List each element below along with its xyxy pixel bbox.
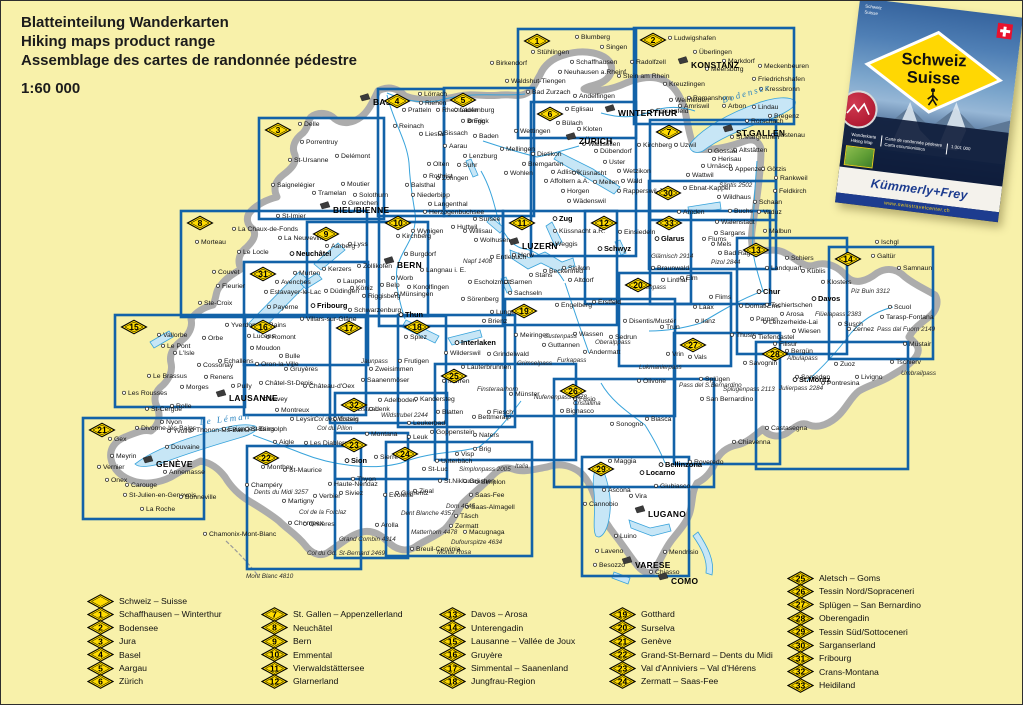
town-marker bbox=[411, 193, 414, 196]
town-label: Les Rousses bbox=[128, 390, 168, 397]
legend-item-13: 13Davos – Arosa bbox=[439, 608, 528, 620]
town-label: Dietikon bbox=[537, 151, 562, 158]
town-label: Montana bbox=[371, 431, 398, 438]
legend-item-21: 21Genève bbox=[609, 635, 671, 647]
town-label: Frutigen bbox=[404, 358, 429, 365]
town-label: Elm bbox=[686, 275, 698, 282]
town-marker bbox=[288, 521, 291, 524]
town-label: Bülach bbox=[562, 120, 583, 127]
town-marker bbox=[123, 493, 126, 496]
town-label: Divonne-les-Bains bbox=[141, 425, 197, 432]
town-label: Goppenstein bbox=[436, 429, 475, 436]
town-label: Kirchberg bbox=[402, 233, 431, 240]
town-marker bbox=[473, 217, 476, 220]
town-marker bbox=[739, 304, 742, 307]
town-label: Klosters bbox=[827, 279, 852, 286]
town-label: Uzwil bbox=[680, 142, 697, 149]
town-label: Dübendorf bbox=[600, 148, 632, 155]
town-marker bbox=[531, 152, 534, 155]
town-label: Walenstadt bbox=[721, 219, 755, 226]
town-marker bbox=[160, 420, 163, 423]
town-marker bbox=[718, 251, 721, 254]
town-label: Porrentruy bbox=[306, 139, 338, 146]
svg-text:17: 17 bbox=[448, 663, 458, 673]
legend-item-3: 3Jura bbox=[87, 635, 136, 647]
town-label: Zuoz bbox=[840, 361, 856, 368]
town-label: Laufenburg bbox=[460, 107, 495, 114]
town-label: Balsthal bbox=[411, 182, 436, 189]
town-label: Sörenberg bbox=[467, 296, 499, 303]
town-label: Buchs bbox=[734, 208, 753, 215]
town-marker bbox=[531, 50, 534, 53]
town-label: Orbe bbox=[208, 335, 223, 342]
town-label: Moudon bbox=[256, 345, 281, 352]
town-label: Schaan bbox=[759, 199, 782, 206]
legend-item-1: 1Schaffhausen – Winterthur bbox=[87, 608, 222, 620]
town-marker bbox=[411, 229, 414, 232]
town-label: Lucens bbox=[253, 333, 276, 340]
town-label: Vallorbe bbox=[163, 332, 188, 339]
peak-pass-label: Umbrailpass bbox=[901, 370, 937, 377]
town-marker bbox=[765, 266, 768, 269]
legend-label: Bodensee bbox=[119, 623, 158, 633]
town-label: Riehen bbox=[425, 100, 447, 107]
town-label: Flims bbox=[715, 294, 732, 301]
svg-text:13: 13 bbox=[448, 609, 458, 619]
town-label: Kreuzlingen bbox=[669, 81, 705, 88]
town-label: Disentis/Mustér bbox=[629, 318, 677, 325]
town-marker bbox=[231, 384, 234, 387]
sheet-number-diamond-25: 25 bbox=[788, 571, 813, 585]
town-label: Herisau bbox=[718, 156, 742, 163]
svg-text:10: 10 bbox=[270, 649, 280, 659]
legend-label: Sarganserland bbox=[819, 640, 876, 650]
town-label: Leuk bbox=[413, 434, 428, 441]
city-marker bbox=[311, 304, 315, 308]
sheet-number-diamond-3: 3 bbox=[266, 123, 291, 137]
town-marker bbox=[195, 240, 198, 243]
town-marker bbox=[357, 264, 360, 267]
town-marker bbox=[463, 530, 466, 533]
peak-pass-label: Grand Combin 4314 bbox=[339, 536, 396, 543]
city-area-marker bbox=[678, 57, 688, 65]
town-marker bbox=[500, 147, 503, 150]
town-label: Vrin bbox=[672, 351, 684, 358]
town-marker bbox=[303, 384, 306, 387]
sheet-number-diamond-3: 3 bbox=[88, 634, 113, 648]
town-label: Sisikon bbox=[568, 265, 590, 272]
town-marker bbox=[487, 352, 490, 355]
map-index-page: BlumbergSingenStühlingenSchaffhausenNeuh… bbox=[0, 0, 1023, 705]
town-marker bbox=[543, 269, 546, 272]
town-marker bbox=[473, 433, 476, 436]
town-marker bbox=[324, 289, 327, 292]
town-label: Annemasse bbox=[169, 469, 205, 476]
town-label: Visp bbox=[461, 451, 474, 458]
peak-pass-label: Dent Blanche 4357 bbox=[401, 510, 455, 517]
town-marker bbox=[514, 333, 517, 336]
town-label: Herzogenbuchsee bbox=[429, 209, 484, 216]
town-label: Andelfingen bbox=[579, 93, 615, 100]
town-marker bbox=[855, 375, 858, 378]
legend-diamond-icon: 33 bbox=[787, 678, 814, 693]
town-marker bbox=[504, 280, 507, 283]
town-label: Douvaine bbox=[171, 444, 200, 451]
peak-pass-label: Wildstrubel 2244 bbox=[381, 412, 428, 419]
city-label: Sion bbox=[351, 456, 367, 465]
town-marker bbox=[469, 493, 472, 496]
town-label: St-Imier bbox=[282, 213, 307, 220]
town-marker bbox=[438, 131, 441, 134]
town-label: Ste-Croix bbox=[204, 300, 233, 307]
svg-text:30: 30 bbox=[663, 188, 673, 198]
town-marker bbox=[232, 227, 235, 230]
town-label: Delémont bbox=[341, 153, 370, 160]
town-label: Couvet bbox=[218, 269, 240, 276]
town-marker bbox=[472, 415, 475, 418]
town-marker bbox=[490, 61, 493, 64]
town-label: Galtür bbox=[877, 253, 896, 260]
city-marker bbox=[399, 313, 403, 317]
town-marker bbox=[645, 417, 648, 420]
town-marker bbox=[701, 164, 704, 167]
peak-pass-label: Sustenpass bbox=[544, 333, 578, 340]
sheet-number-diamond-2: 2 bbox=[88, 621, 113, 635]
town-label: Singen bbox=[606, 44, 627, 51]
town-marker bbox=[752, 335, 755, 338]
town-marker bbox=[677, 210, 680, 213]
town-label: Rankweil bbox=[780, 175, 808, 182]
legend-label: Grand-St-Bernard – Dents du Midi bbox=[641, 650, 773, 660]
town-marker bbox=[451, 225, 454, 228]
town-label: Gex bbox=[114, 436, 127, 443]
town-marker bbox=[765, 426, 768, 429]
town-marker bbox=[666, 352, 669, 355]
svg-text:32: 32 bbox=[349, 400, 359, 410]
town-label: Gossau bbox=[714, 148, 738, 155]
town-label: Belp bbox=[386, 282, 400, 289]
town-marker bbox=[125, 483, 128, 486]
town-label: Tschierv bbox=[896, 359, 922, 366]
town-marker bbox=[482, 319, 485, 322]
peak-pass-label: Simplonpass 2005 bbox=[459, 466, 511, 473]
town-marker bbox=[312, 191, 315, 194]
svg-text:28: 28 bbox=[796, 613, 806, 623]
town-marker bbox=[785, 349, 788, 352]
legend-item-27: 27Splügen – San Bernardino bbox=[787, 599, 921, 611]
town-label: Sonogno bbox=[616, 421, 643, 428]
town-marker bbox=[743, 361, 746, 364]
town-marker bbox=[250, 346, 253, 349]
town-label: Braunwald bbox=[657, 265, 689, 272]
town-marker bbox=[419, 101, 422, 104]
town-label: Wilderswil bbox=[450, 350, 481, 357]
major-city-label: COMO bbox=[671, 576, 698, 586]
town-label: Haute-Nendaz bbox=[334, 481, 378, 488]
town-label: Evolène bbox=[389, 492, 414, 499]
city-marker bbox=[812, 297, 816, 301]
town-label: Vals bbox=[694, 354, 707, 361]
legend-item-10: 10Emmental bbox=[261, 649, 332, 661]
town-marker bbox=[618, 230, 621, 233]
peak-pass-label: Dents du Midi 3257 bbox=[254, 489, 309, 496]
town-marker bbox=[608, 459, 611, 462]
city-area-marker bbox=[360, 94, 370, 102]
sheet-number-diamond-33: 33 bbox=[788, 678, 813, 692]
town-label: Olivone bbox=[643, 378, 666, 385]
town-label: Morteau bbox=[201, 239, 226, 246]
legend-label: Basel bbox=[119, 650, 141, 660]
town-marker bbox=[443, 144, 446, 147]
town-label: Birkendorf bbox=[496, 60, 527, 67]
town-label: Mellingen bbox=[506, 146, 535, 153]
town-marker bbox=[180, 385, 183, 388]
legend-label: Glarnerland bbox=[293, 676, 338, 686]
peak-pass-label: Lukmanierpass bbox=[639, 364, 683, 371]
peak-pass-label: Col du Gd. St-Bernard 2469 bbox=[307, 550, 386, 557]
peak-pass-label: Finsteraarhorn bbox=[477, 386, 518, 393]
town-label: Solothurn bbox=[359, 192, 388, 199]
svg-text:7: 7 bbox=[667, 127, 672, 137]
major-city-label: VARESE bbox=[635, 560, 671, 570]
town-marker bbox=[275, 408, 278, 411]
town-label: Tiefencastel bbox=[758, 334, 795, 341]
town-label: Arosa bbox=[786, 311, 804, 318]
sheet-number-diamond-14: 14 bbox=[836, 252, 861, 266]
town-marker bbox=[407, 435, 410, 438]
town-label: Aigle bbox=[279, 439, 294, 446]
town-marker bbox=[730, 135, 733, 138]
town-label: Romont bbox=[272, 334, 296, 341]
town-marker bbox=[383, 493, 386, 496]
title-french: Assemblage des cartes de randonnée pédes… bbox=[21, 51, 357, 70]
town-label: St-Luc bbox=[428, 466, 448, 473]
town-marker bbox=[247, 334, 250, 337]
town-label: Altstätten bbox=[739, 147, 768, 154]
town-label: Savognin bbox=[749, 360, 778, 367]
town-marker bbox=[880, 315, 883, 318]
city-marker bbox=[793, 378, 797, 382]
town-label: Bonneville bbox=[185, 494, 217, 501]
svg-text:9: 9 bbox=[272, 636, 277, 646]
town-label: Saas-Fee bbox=[475, 492, 505, 499]
svg-text:14: 14 bbox=[843, 254, 853, 264]
town-marker bbox=[278, 236, 281, 239]
town-label: Waldshut-Tiengen bbox=[511, 78, 566, 85]
town-label: Wald bbox=[627, 178, 642, 185]
peak-pass-label: Napf 1408 bbox=[463, 258, 493, 265]
legend-diamond-icon: 6 bbox=[87, 674, 114, 689]
town-marker bbox=[570, 60, 573, 63]
town-label: Wettingen bbox=[520, 128, 551, 135]
town-marker bbox=[614, 534, 617, 537]
town-marker bbox=[427, 162, 430, 165]
legend-item-14: 14Unterengadin bbox=[439, 622, 523, 634]
town-marker bbox=[551, 170, 554, 173]
town-marker bbox=[752, 77, 755, 80]
town-marker bbox=[821, 280, 824, 283]
town-label: Wetzikon bbox=[623, 168, 651, 175]
sheet-number-diamond-26: 26 bbox=[788, 585, 813, 599]
town-marker bbox=[362, 294, 365, 297]
town-marker bbox=[678, 104, 681, 107]
town-label: Brienz bbox=[488, 318, 508, 325]
town-marker bbox=[361, 378, 364, 381]
town-marker bbox=[595, 549, 598, 552]
town-marker bbox=[630, 60, 633, 63]
town-marker bbox=[369, 407, 372, 410]
town-label: Zernez bbox=[853, 326, 875, 333]
sheet-number-diamond-15: 15 bbox=[440, 634, 465, 648]
svg-text:29: 29 bbox=[796, 626, 806, 636]
town-label: St-Ursanne bbox=[294, 157, 329, 164]
town-label: Naters bbox=[479, 432, 500, 439]
town-label: Zweisimmen bbox=[375, 366, 413, 373]
town-label: La Roche bbox=[146, 506, 175, 513]
town-marker bbox=[404, 252, 407, 255]
legend-label: Tessin Nord/Sopraceneri bbox=[819, 586, 914, 596]
town-marker bbox=[264, 290, 267, 293]
town-marker bbox=[617, 169, 620, 172]
town-marker bbox=[688, 355, 691, 358]
town-label: Ascona bbox=[608, 487, 631, 494]
town-label: Brugg bbox=[467, 118, 485, 125]
town-label: Luino bbox=[620, 533, 637, 540]
town-label: Urnäsch bbox=[707, 163, 733, 170]
svg-text:16: 16 bbox=[258, 322, 268, 332]
town-marker bbox=[353, 193, 356, 196]
svg-text:22: 22 bbox=[261, 453, 271, 463]
cover-corner-label: Schweiz Suisse bbox=[864, 3, 882, 16]
city-marker bbox=[345, 459, 349, 463]
town-marker bbox=[504, 171, 507, 174]
town-label: Rothrist bbox=[429, 173, 453, 180]
town-marker bbox=[303, 522, 306, 525]
sheet-number-diamond-21: 21 bbox=[610, 634, 635, 648]
town-label: La Chaux-de-Fonds bbox=[238, 226, 299, 233]
sheet-number-diamond-8: 8 bbox=[262, 621, 287, 635]
city-label: Schwyz bbox=[604, 244, 631, 253]
town-label: Feldkirch bbox=[779, 188, 807, 195]
town-marker bbox=[161, 344, 164, 347]
town-marker bbox=[715, 220, 718, 223]
town-label: Eglisau bbox=[571, 106, 594, 113]
town-label: Aarau bbox=[449, 143, 467, 150]
town-label: Worb bbox=[397, 275, 413, 282]
town-marker bbox=[792, 329, 795, 332]
town-label: Kerzers bbox=[328, 266, 352, 273]
town-marker bbox=[212, 270, 215, 273]
town-marker bbox=[313, 494, 316, 497]
town-marker bbox=[374, 455, 377, 458]
legend-item-6: 6Zürich bbox=[87, 675, 143, 687]
town-label: Payerne bbox=[273, 304, 299, 311]
town-marker bbox=[271, 183, 274, 186]
town-label: Münsingen bbox=[400, 291, 433, 298]
sheet-number-diamond-32: 32 bbox=[788, 665, 813, 679]
town-marker bbox=[903, 342, 906, 345]
svg-text:12: 12 bbox=[270, 676, 280, 686]
city-area-marker bbox=[622, 557, 632, 565]
town-marker bbox=[337, 279, 340, 282]
svg-text:27: 27 bbox=[688, 340, 698, 350]
town-marker bbox=[669, 98, 672, 101]
peak-pass-label: Pizol 2844 bbox=[711, 259, 741, 266]
svg-text:20: 20 bbox=[633, 280, 643, 290]
town-marker bbox=[610, 422, 613, 425]
town-marker bbox=[763, 320, 766, 323]
town-marker bbox=[473, 134, 476, 137]
town-label: Samnaun bbox=[903, 265, 932, 272]
town-label: Horgen bbox=[567, 188, 590, 195]
sheet-number-diamond-13: 13 bbox=[440, 608, 465, 622]
town-label: Le Brassus bbox=[153, 373, 188, 380]
town-marker bbox=[572, 171, 575, 174]
town-label: Wassen bbox=[579, 331, 604, 338]
town-marker bbox=[505, 79, 508, 82]
town-marker bbox=[108, 437, 111, 440]
town-marker bbox=[410, 547, 413, 550]
legend-item-2: 2Bodensee bbox=[87, 622, 158, 634]
town-marker bbox=[438, 479, 441, 482]
town-marker bbox=[273, 440, 276, 443]
svg-text:5: 5 bbox=[98, 663, 103, 673]
peak-pass-label: Piz Buin 3312 bbox=[851, 288, 890, 295]
town-label: Bremgarten bbox=[528, 161, 564, 168]
town-marker bbox=[693, 50, 696, 53]
town-label: San Bernardino bbox=[706, 396, 753, 403]
town-marker bbox=[602, 488, 605, 491]
town-label: Lörrach bbox=[424, 91, 447, 98]
cover-title-line1: Schweiz bbox=[901, 50, 967, 70]
town-label: Horw bbox=[518, 252, 534, 259]
peak-pass-label: Italia bbox=[515, 463, 529, 470]
town-label: Château-d'Oex bbox=[309, 383, 355, 390]
svg-text:4: 4 bbox=[98, 649, 103, 659]
town-marker bbox=[288, 158, 291, 161]
town-marker bbox=[474, 238, 477, 241]
svg-text:26: 26 bbox=[568, 386, 578, 396]
town-label: Moutier bbox=[347, 181, 370, 188]
town-label: Le Pont bbox=[167, 343, 191, 350]
legend-label: Oberengadin bbox=[819, 613, 869, 623]
legend-label: Gotthard bbox=[641, 609, 675, 619]
town-marker bbox=[463, 154, 466, 157]
town-label: Pratteln bbox=[408, 107, 432, 114]
town-label: Cannobio bbox=[589, 501, 618, 508]
town-marker bbox=[380, 283, 383, 286]
town-label: Schiers bbox=[791, 255, 814, 262]
town-marker bbox=[773, 342, 776, 345]
svg-text:14: 14 bbox=[448, 623, 458, 633]
town-marker bbox=[369, 367, 372, 370]
town-marker bbox=[202, 336, 205, 339]
legend-item-28: 28Oberengadin bbox=[787, 612, 869, 624]
town-marker bbox=[290, 417, 293, 420]
town-label: Chiavenna bbox=[738, 439, 771, 446]
legend-item-20: 20Surselva bbox=[609, 622, 675, 634]
peak-pass-label: Col du Pillon bbox=[317, 425, 353, 432]
town-label: L'Isle bbox=[179, 350, 195, 357]
town-label: Erstfeld bbox=[598, 299, 621, 306]
town-marker bbox=[147, 374, 150, 377]
town-label: Montreux bbox=[281, 407, 310, 414]
town-label: Morges bbox=[186, 384, 209, 391]
legend-item-9: 9Bern bbox=[261, 635, 311, 647]
town-marker bbox=[592, 300, 595, 303]
legend-diamond-icon: 18 bbox=[439, 674, 466, 689]
peak-pass-label: Pass dal Fuorn 2149 bbox=[877, 326, 936, 333]
